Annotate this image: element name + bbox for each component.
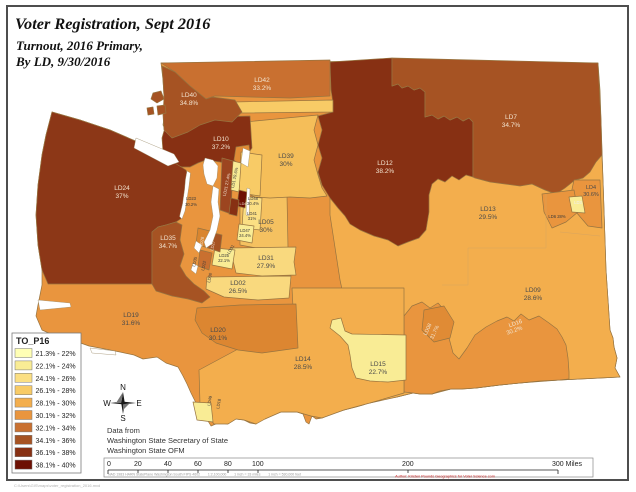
svg-text:TO_P16: TO_P16 bbox=[16, 336, 49, 346]
svg-text:20: 20 bbox=[134, 461, 142, 468]
svg-text:LD39: LD39 bbox=[278, 153, 294, 160]
svg-text:34.7%: 34.7% bbox=[502, 122, 521, 129]
svg-text:30.1%: 30.1% bbox=[209, 335, 228, 342]
svg-text:32.1% - 34%: 32.1% - 34% bbox=[36, 425, 76, 432]
svg-text:30.4%: 30.4% bbox=[247, 201, 259, 206]
svg-text:LD4: LD4 bbox=[586, 185, 596, 191]
svg-text:LD42: LD42 bbox=[254, 77, 270, 84]
svg-text:Author: Kristen Pounds Geograp: Author: Kristen Pounds Geographics for V… bbox=[395, 475, 495, 479]
svg-text:38.1% - 40%: 38.1% - 40% bbox=[36, 463, 76, 470]
svg-text:LD15: LD15 bbox=[370, 361, 386, 368]
svg-text:N: N bbox=[120, 383, 126, 392]
svg-text:LD02: LD02 bbox=[230, 280, 246, 287]
svg-text:22.1% - 24%: 22.1% - 24% bbox=[36, 363, 76, 370]
svg-text:60: 60 bbox=[194, 461, 202, 468]
svg-text:30.2%: 30.2% bbox=[185, 202, 197, 207]
svg-text:Washington State OFM: Washington State OFM bbox=[107, 446, 185, 455]
svg-text:30.1% - 32%: 30.1% - 32% bbox=[36, 413, 76, 420]
svg-text:22.1%: 22.1% bbox=[218, 258, 230, 263]
svg-text:29.5%: 29.5% bbox=[479, 214, 498, 221]
svg-text:26.5%: 26.5% bbox=[229, 288, 248, 295]
svg-text:LD10: LD10 bbox=[213, 136, 229, 143]
svg-text:200: 200 bbox=[402, 461, 414, 468]
svg-text:31.6%: 31.6% bbox=[122, 320, 141, 327]
svg-text:27.9%: 27.9% bbox=[257, 263, 276, 270]
svg-text:Data from: Data from bbox=[107, 426, 140, 435]
svg-text:28.1% - 30%: 28.1% - 30% bbox=[36, 401, 76, 408]
svg-text:LD05: LD05 bbox=[258, 219, 274, 226]
svg-text:300 Miles: 300 Miles bbox=[552, 461, 582, 468]
svg-text:LD40: LD40 bbox=[181, 92, 197, 99]
svg-text:Washington State Secretary of: Washington State Secretary of State bbox=[107, 436, 228, 445]
svg-text:LD7: LD7 bbox=[505, 114, 517, 121]
svg-text:0: 0 bbox=[107, 461, 111, 468]
svg-text:LD31: LD31 bbox=[258, 255, 274, 262]
svg-text:NAD 1983 HARN StatePlane Washi: NAD 1983 HARN StatePlane Washington Sout… bbox=[108, 473, 301, 477]
svg-text:38.2%: 38.2% bbox=[376, 168, 395, 175]
svg-text:28.6%: 28.6% bbox=[524, 295, 543, 302]
svg-text:100: 100 bbox=[252, 461, 264, 468]
svg-text:37%: 37% bbox=[115, 193, 128, 200]
svg-text:W: W bbox=[103, 399, 111, 408]
svg-text:30%: 30% bbox=[279, 161, 292, 168]
svg-text:21.3% - 22%: 21.3% - 22% bbox=[36, 351, 76, 358]
svg-text:26.1% - 28%: 26.1% - 28% bbox=[36, 388, 76, 395]
svg-text:E: E bbox=[136, 399, 141, 408]
svg-text:LD09: LD09 bbox=[525, 287, 541, 294]
svg-text:80: 80 bbox=[224, 461, 232, 468]
svg-text:LD3: LD3 bbox=[574, 200, 582, 205]
svg-text:33.2%: 33.2% bbox=[253, 85, 272, 92]
svg-text:LD14: LD14 bbox=[295, 356, 311, 363]
svg-text:24.4%: 24.4% bbox=[239, 233, 251, 238]
svg-text:LD12: LD12 bbox=[377, 160, 393, 167]
svg-text:30.6%: 30.6% bbox=[583, 192, 599, 198]
svg-text:37.2%: 37.2% bbox=[212, 144, 231, 151]
svg-text:LD35: LD35 bbox=[160, 235, 176, 242]
svg-text:34.7%: 34.7% bbox=[159, 243, 178, 250]
svg-text:22.7%: 22.7% bbox=[369, 369, 388, 376]
svg-text:34.8%: 34.8% bbox=[180, 100, 199, 107]
svg-text:LD20: LD20 bbox=[210, 327, 226, 334]
svg-text:LD24: LD24 bbox=[114, 185, 130, 192]
svg-text:34.1% - 36%: 34.1% - 36% bbox=[36, 438, 76, 445]
svg-text:24.1% - 26%: 24.1% - 26% bbox=[36, 376, 76, 383]
svg-text:LD23: LD23 bbox=[186, 196, 197, 201]
svg-text:31%: 31% bbox=[248, 216, 257, 221]
svg-text:LD19: LD19 bbox=[123, 312, 139, 319]
svg-text:40: 40 bbox=[164, 461, 172, 468]
svg-text:LD6 28%: LD6 28% bbox=[548, 214, 566, 219]
svg-text:LD13: LD13 bbox=[480, 206, 496, 213]
svg-text:30%: 30% bbox=[259, 227, 272, 234]
svg-text:S: S bbox=[120, 414, 125, 423]
svg-text:28.5%: 28.5% bbox=[294, 364, 313, 371]
svg-text:36.1% - 38%: 36.1% - 38% bbox=[36, 450, 76, 457]
